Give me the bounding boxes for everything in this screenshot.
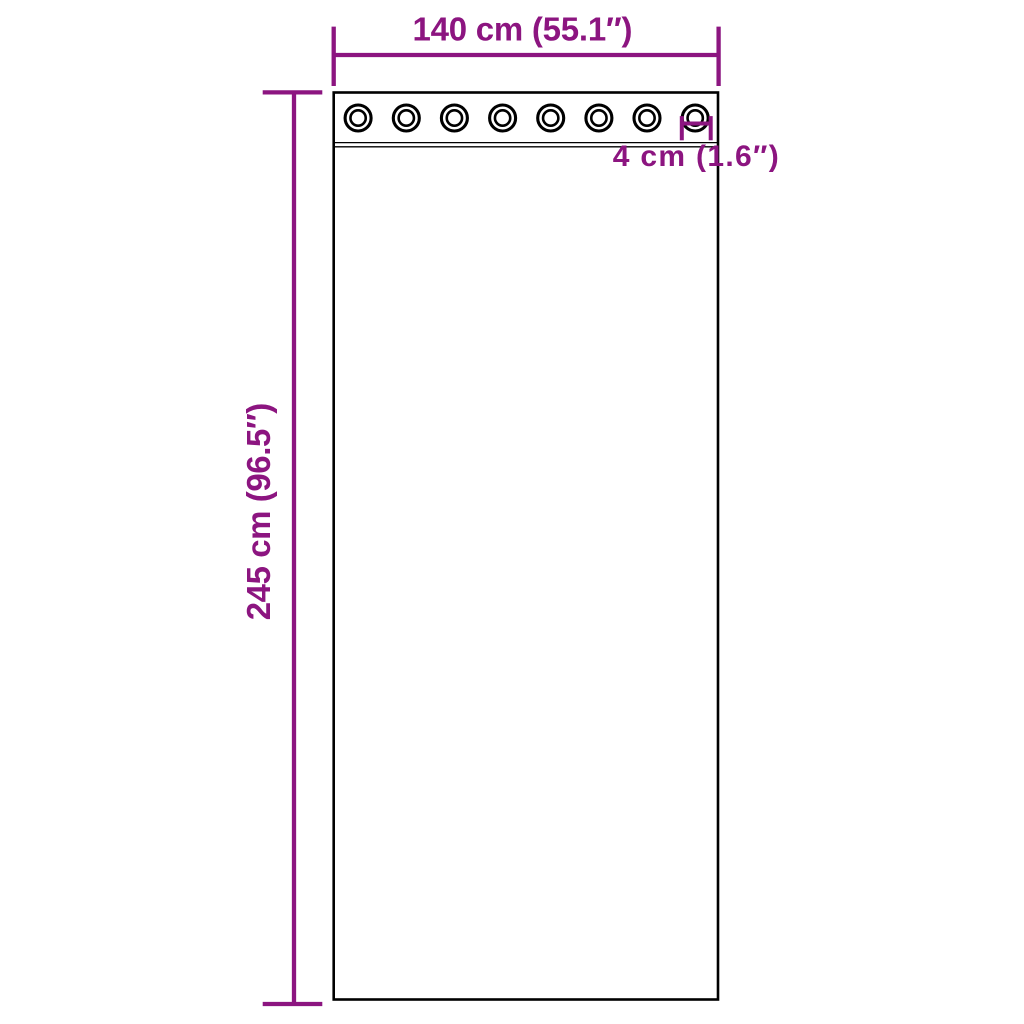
svg-text:245 cm (96.5″): 245 cm (96.5″) <box>240 403 277 621</box>
svg-text:140 cm (55.1″): 140 cm (55.1″) <box>413 11 633 48</box>
svg-text:4 cm (1.6″): 4 cm (1.6″) <box>613 140 779 173</box>
